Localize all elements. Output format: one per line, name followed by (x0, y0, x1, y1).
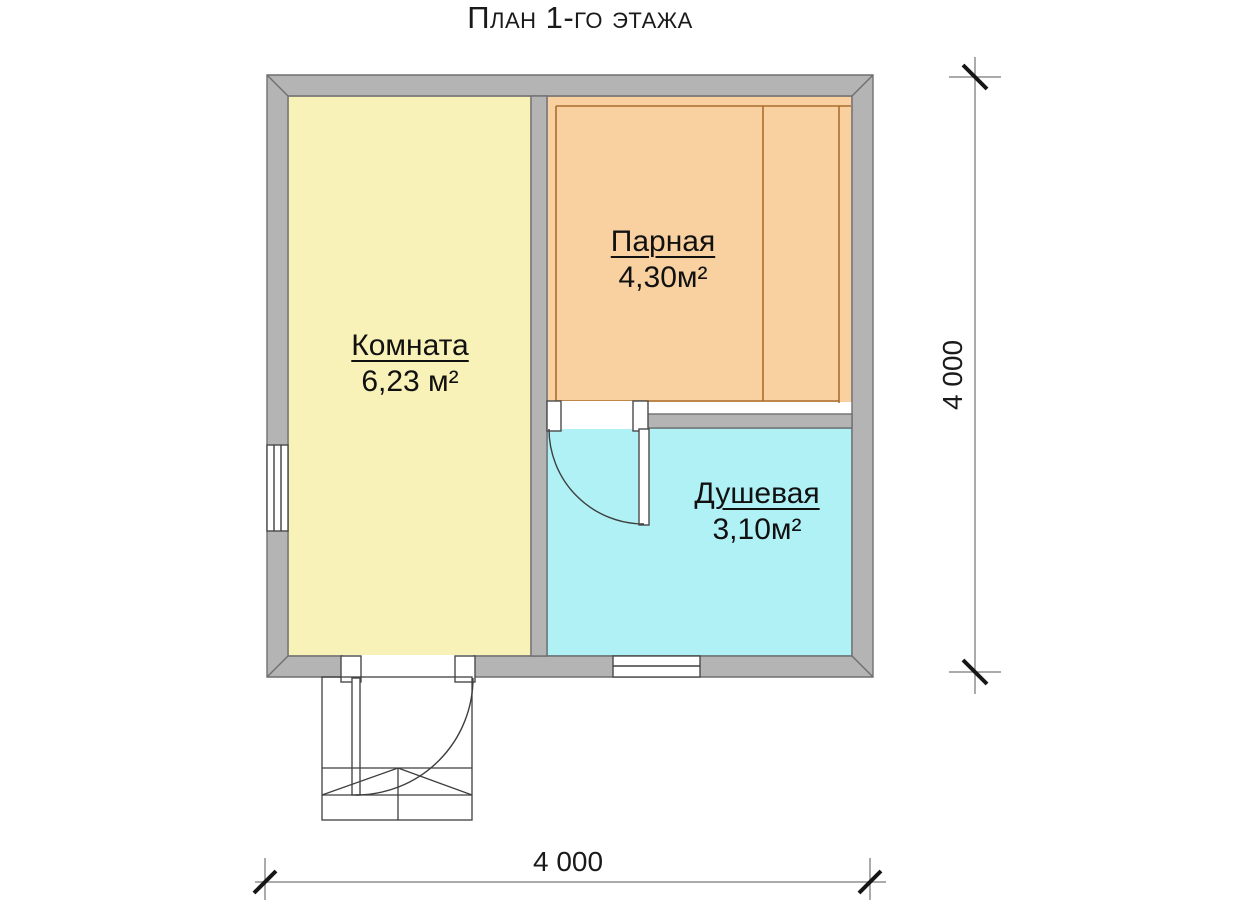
floor-plan-page: План 1-го этажа Комната 6,23 м² Парная 4… (0, 0, 1250, 900)
wall-parnaya-dushevaya (645, 414, 852, 428)
dim-bottom-value: 4 000 (533, 846, 603, 878)
door-parnaya-leaf (639, 429, 649, 525)
door-entrance-swing-arc (356, 678, 473, 795)
window-bottom (613, 656, 700, 677)
wall-komnata-right (531, 96, 547, 656)
door-entrance-leaf (352, 678, 360, 795)
komnata-label: Комната 6,23 м² (351, 328, 468, 400)
dim-right-value: 4 000 (937, 340, 969, 410)
floor-plan-drawing (0, 0, 1250, 900)
page-title: План 1-го этажа (467, 0, 693, 36)
window-left-frame (267, 445, 288, 531)
parnaya-name: Парная (611, 224, 715, 260)
door-parnaya-jamb-right (633, 401, 648, 431)
wall-gap-strip (645, 402, 852, 414)
door-parnaya-opening (547, 401, 645, 429)
window-left (267, 445, 288, 531)
dushevaya-area: 3,10м² (694, 512, 819, 548)
dushevaya-name: Душевая (694, 476, 819, 512)
komnata-name: Комната (351, 328, 468, 364)
door-entrance (341, 655, 475, 795)
door-entrance-opening (343, 655, 473, 678)
parnaya-area: 4,30м² (611, 260, 715, 296)
komnata-area: 6,23 м² (351, 364, 468, 400)
parnaya-label: Парная 4,30м² (611, 224, 715, 296)
dushevaya-label: Душевая 3,10м² (694, 476, 819, 548)
door-parnaya-jamb-left (547, 401, 561, 431)
